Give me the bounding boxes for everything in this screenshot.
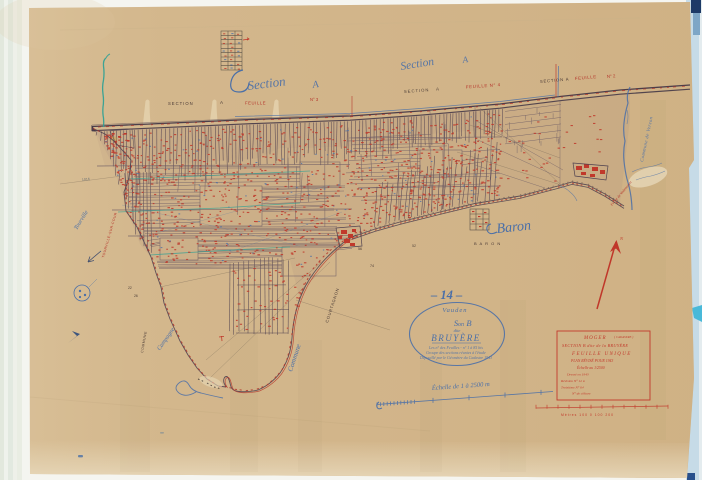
svg-text:Mètres 100 0 100 2: Mètres 100 0 100 200 [561,413,614,417]
svg-text:74: 74 [370,264,374,268]
svg-text:FEUILLE: FEUILLE [245,101,266,106]
svg-text:Vauden: Vauden [442,307,467,314]
svg-text:52: 52 [412,244,416,248]
svg-text:SECTION B dite de la BRUYÈ: SECTION B dite de la BRUYÈRE [562,343,628,348]
svg-text:MOGER: MOGER [583,336,607,341]
svg-text:1016: 1016 [82,177,90,182]
svg-text:N° 2: N° 2 [607,73,617,79]
svg-text:22: 22 [128,286,132,290]
svg-text:( CADASTRE ): ( CADASTRE ) [614,335,633,339]
svg-text:56: 56 [358,247,362,251]
svg-text:N° 3: N° 3 [310,97,319,102]
svg-text:B: B [466,318,471,328]
svg-text:A: A [220,100,223,105]
svg-text:Révision N° 12 à: Révision N° 12 à [560,379,585,383]
svg-text:FEUILLE UNIQUE: FEUILLE UNIQUE [571,352,632,357]
svg-text:Troisième N° 64: Troisième N° 64 [561,386,584,390]
svg-text:Échelle au 1/2500: Échelle au 1/2500 [576,365,605,370]
svg-text:A: A [436,87,439,92]
svg-text:Dressé en 1943: Dressé en 1943 [566,373,589,377]
svg-text:BRUYÈRE: BRUYÈRE [431,333,481,343]
svg-text:N° de clôture: N° de clôture [571,392,591,396]
svg-text:26: 26 [134,294,138,298]
svg-text:PLAN RÉVISÉ POUR 1943: PLAN RÉVISÉ POUR 1943 [570,358,613,363]
svg-text:– 14 –: – 14 – [430,288,463,302]
svg-text:Dépouillé par le Géomètre du C: Dépouillé par le Géomètre du Cadastre 19… [419,355,492,360]
svg-text:SECTION: SECTION [168,101,194,106]
svg-text:B A R O N: B A R O N [474,241,501,246]
